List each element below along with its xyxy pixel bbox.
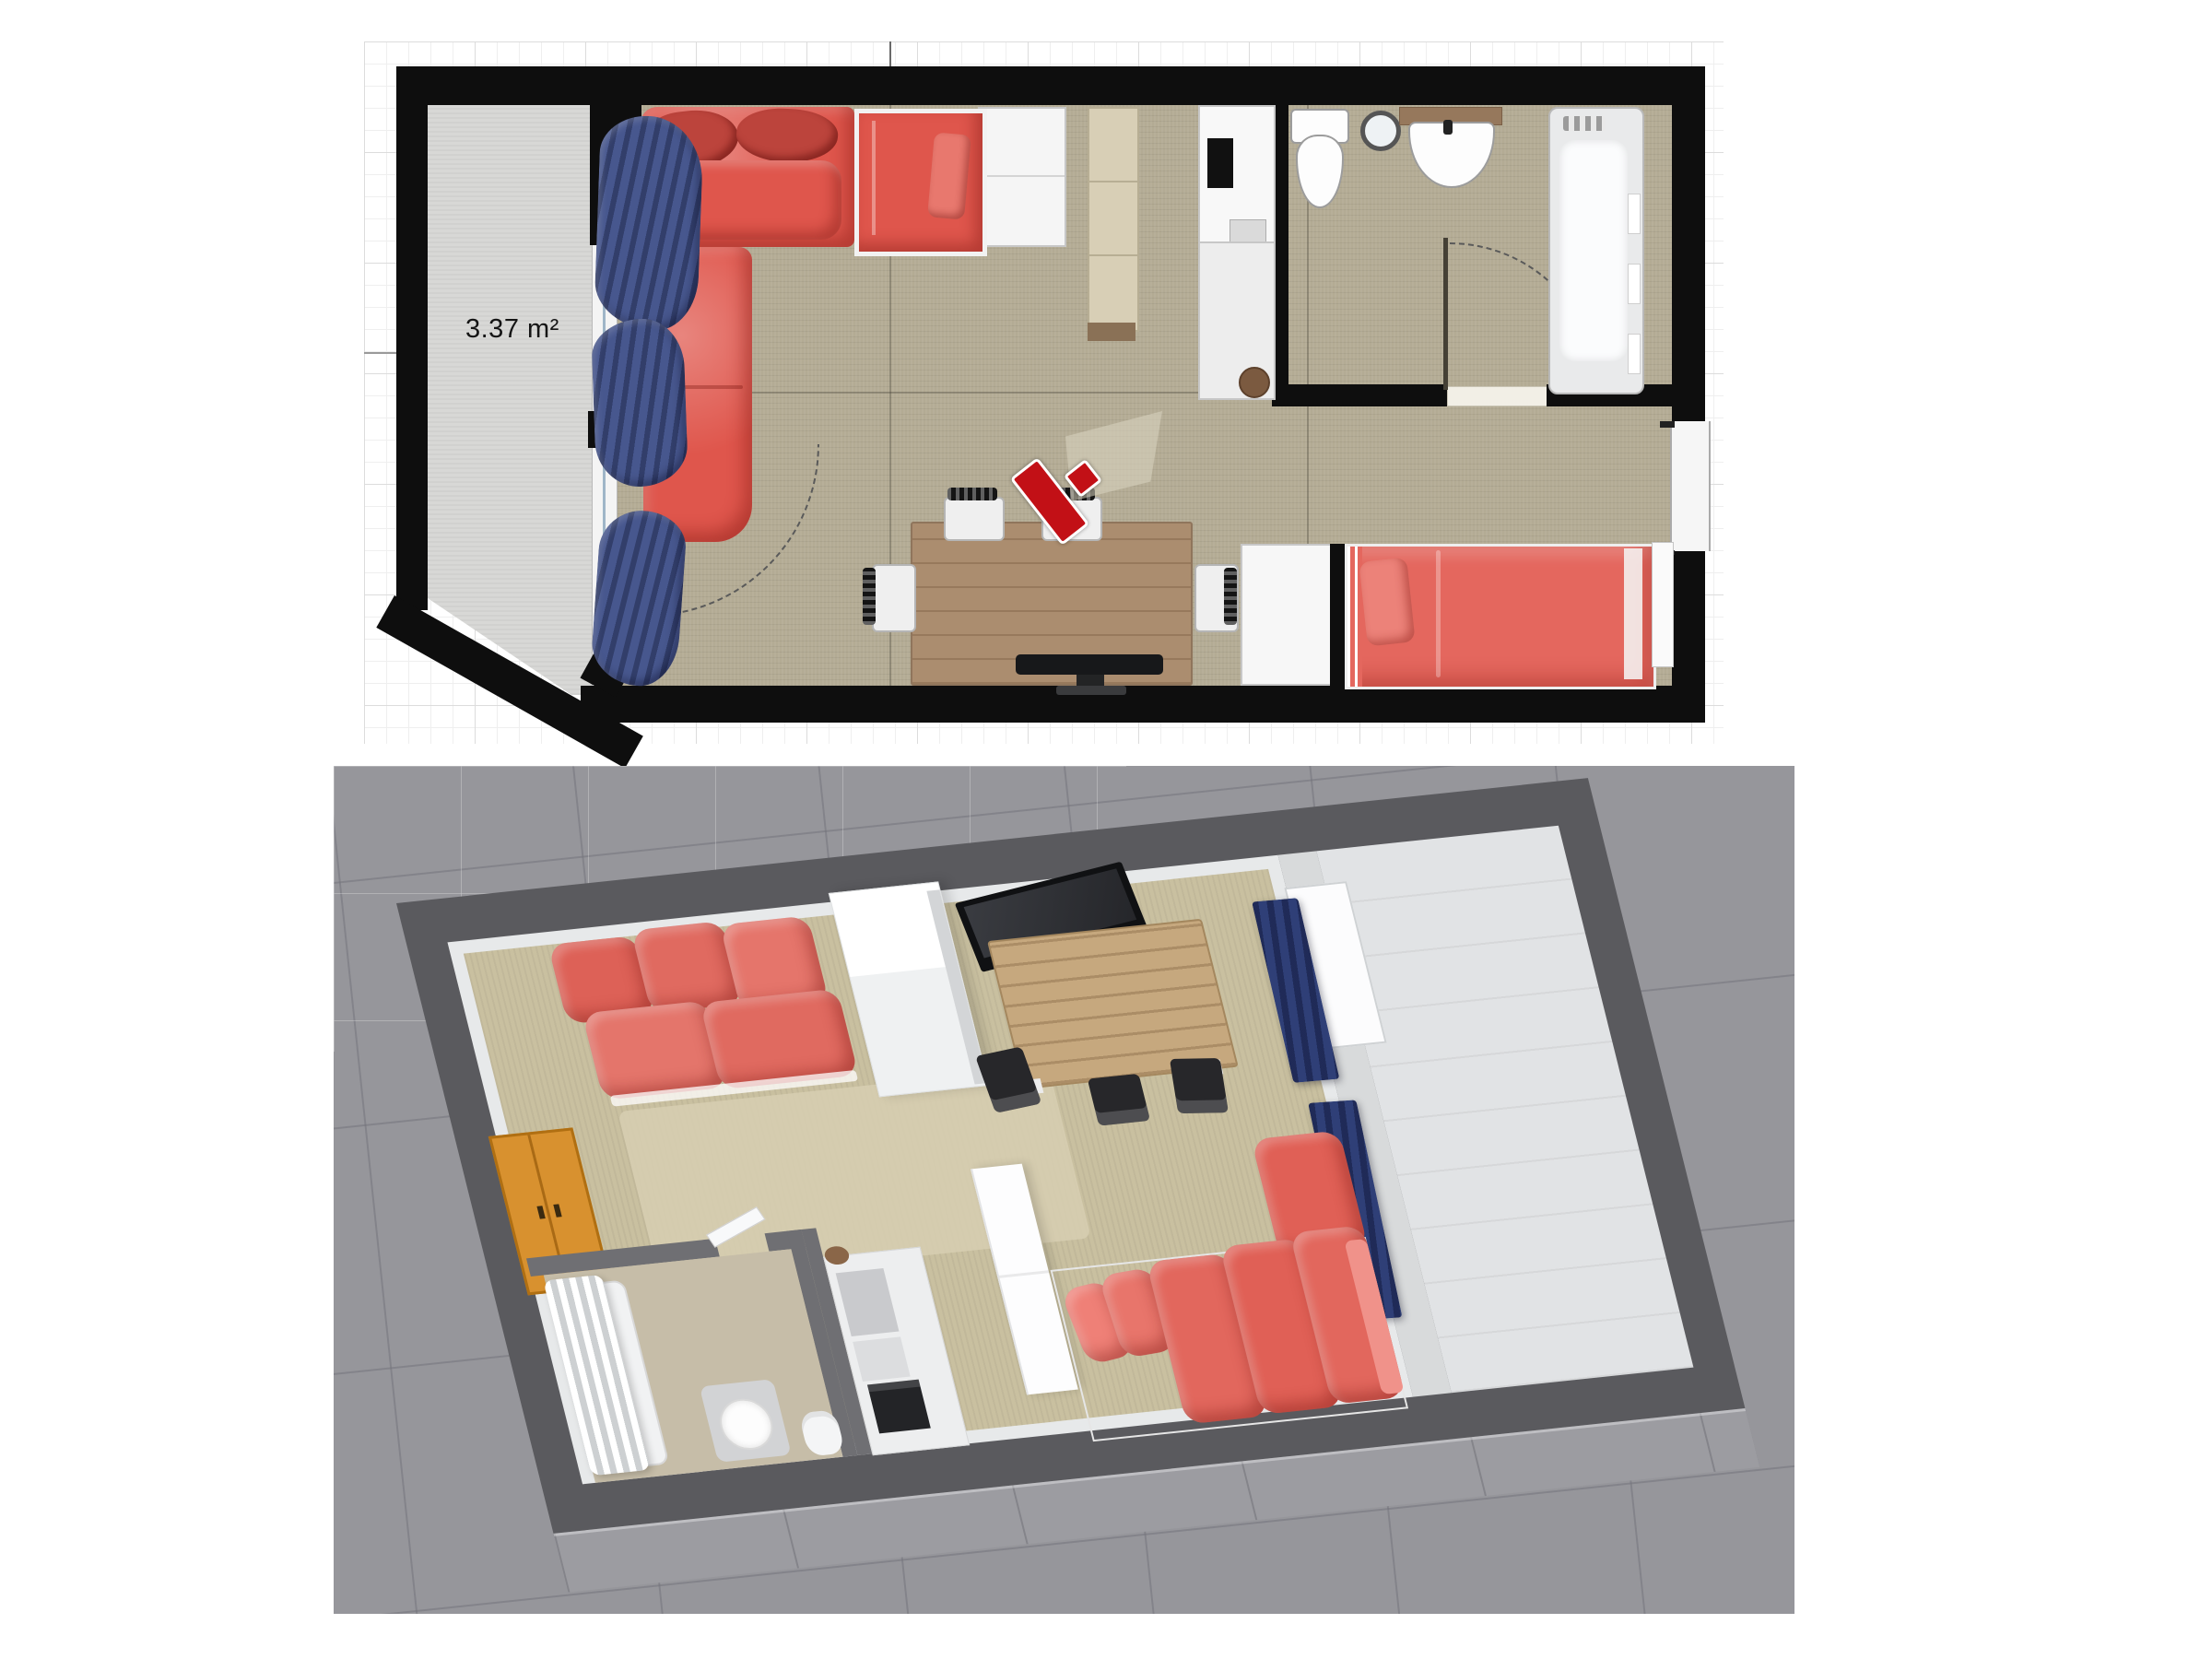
east-window[interactable] [1670,421,1711,551]
wall-east-lower[interactable] [1672,551,1705,723]
daybed-fold [872,121,876,235]
curtain-middle[interactable] [591,317,688,488]
round-mirror[interactable] [1360,111,1401,151]
kitchen-panel-3d [853,1336,910,1382]
balcony-area-label: 3.37 m² [465,314,585,345]
tv-stand-neck [1077,675,1104,686]
bed-3d-frame[interactable] [1051,1237,1409,1441]
camera-marker[interactable] [1012,411,1169,540]
axis-vertical-marker [889,41,891,66]
shelf-line [1089,254,1137,256]
radiator[interactable] [1652,542,1674,667]
bathtub-handle [1628,334,1641,374]
wardrobe-panel-seam [999,1270,1049,1278]
tv-stand-base [1056,686,1126,695]
bathtub[interactable] [1548,107,1644,394]
sofa-back-cushion [735,105,840,166]
bookshelf[interactable] [1088,107,1139,332]
tv[interactable] [1016,654,1163,675]
bed-side-cabinet[interactable] [1241,544,1333,686]
view-3d-viewport[interactable] [334,766,1794,1614]
bathroom-wall-south-a[interactable] [1272,384,1447,406]
dining-chair-north[interactable] [944,497,1005,541]
curtain-upper[interactable] [594,114,704,332]
wall-north[interactable] [396,66,1705,105]
bookshelf-base [1088,323,1135,341]
daybed-pillow [927,132,971,219]
floor-planner-page: 3.37 m² [0,0,2212,1659]
bathtub-handle [1628,194,1641,234]
curtain-bracket [1660,421,1675,428]
bathtub-handle [1628,264,1641,304]
orange-cabinet-handle [536,1206,545,1218]
dining-chair-west[interactable] [872,564,916,632]
orange-cabinet-handle [553,1204,561,1217]
balcony-floor [428,105,592,695]
apartment-3d [396,778,1759,1590]
bathroom-door-leaf[interactable] [1443,238,1448,390]
chair-3d[interactable] [1170,1058,1229,1113]
daybed[interactable] [854,109,987,256]
dining-chair-back [863,568,876,625]
shelf-line [1089,181,1137,182]
dining-chair-back [947,488,997,500]
bathtub-faucet [1563,116,1606,131]
oven-3d[interactable] [867,1380,931,1434]
wall-west[interactable] [396,66,428,610]
bed-sheet-edge [1624,548,1642,679]
double-bed[interactable] [1345,544,1656,689]
kitchen-panel-3d [836,1268,900,1336]
axis-horizontal-marker [364,352,396,354]
wall-south[interactable] [581,686,1705,723]
wardrobe-door-split [980,175,1065,177]
floor-plan-2d-canvas[interactable]: 3.37 m² [364,41,1724,744]
wall-east-upper[interactable] [1672,66,1705,421]
bed-duvet-fold [1436,550,1441,677]
bathtub-basin [1559,140,1628,361]
bed-pillow [1359,558,1415,647]
kitchen-stool[interactable] [1239,367,1270,398]
bed-partition-wall[interactable] [1330,544,1345,686]
cooktop[interactable] [1207,138,1233,188]
wardrobe[interactable] [978,107,1066,247]
dining-chair-back [1224,568,1237,625]
washbasin-faucet [1443,120,1453,135]
